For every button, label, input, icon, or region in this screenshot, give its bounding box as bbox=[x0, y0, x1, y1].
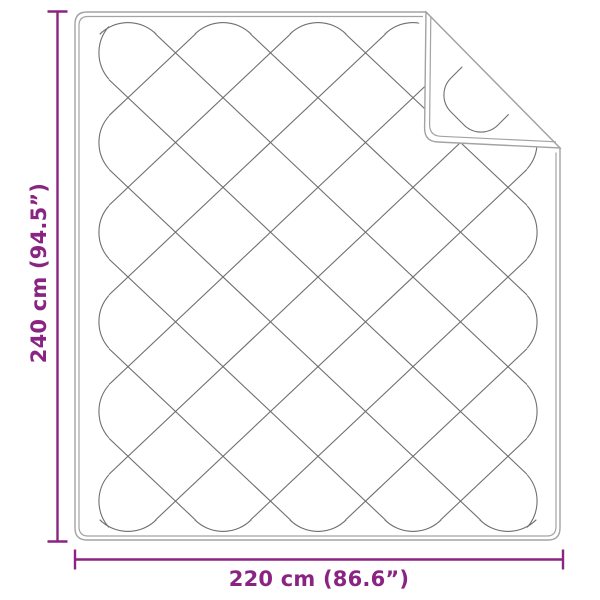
product-dimension-diagram: 240 cm (94.5”) 220 cm (86.6”) bbox=[0, 0, 600, 600]
blanket-line-art bbox=[0, 0, 600, 600]
folded-corner-flap bbox=[425, 12, 560, 148]
flap-outline-outer bbox=[425, 12, 560, 148]
height-dimension-label: 240 cm (94.5”) bbox=[27, 183, 51, 363]
width-dimension-label: 220 cm (86.6”) bbox=[75, 567, 563, 591]
